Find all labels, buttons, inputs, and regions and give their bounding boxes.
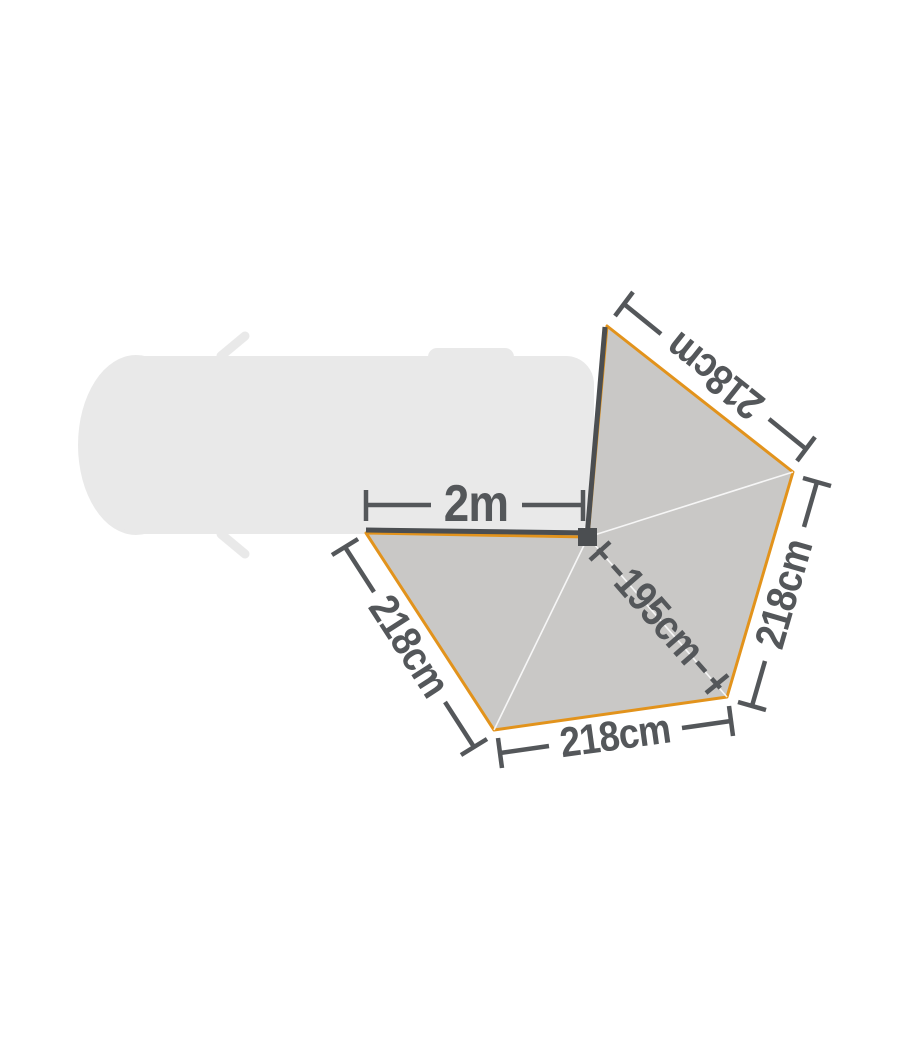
dim-line (345, 547, 374, 592)
vehicle-roof-hatch (428, 348, 514, 370)
awning-dimension-diagram: 2m 218cm 218cm 218cm (0, 0, 916, 1060)
dim-line (445, 702, 474, 747)
dim-line (752, 661, 765, 706)
dim-line (804, 482, 817, 527)
awning-pivot-point (578, 528, 597, 546)
vehicle-mirror-top-icon (221, 336, 245, 356)
dim-line (624, 304, 661, 334)
dim-line (769, 419, 806, 449)
dim-line (682, 721, 731, 728)
vehicle-body (112, 356, 594, 534)
vehicle-silhouette (78, 336, 594, 554)
vehicle-mirror-bottom-icon (221, 534, 245, 554)
diagram-canvas: 2m 218cm 218cm 218cm (0, 0, 916, 1060)
dim-line (500, 746, 549, 753)
dimension-label-mount-width: 2m (444, 475, 508, 532)
